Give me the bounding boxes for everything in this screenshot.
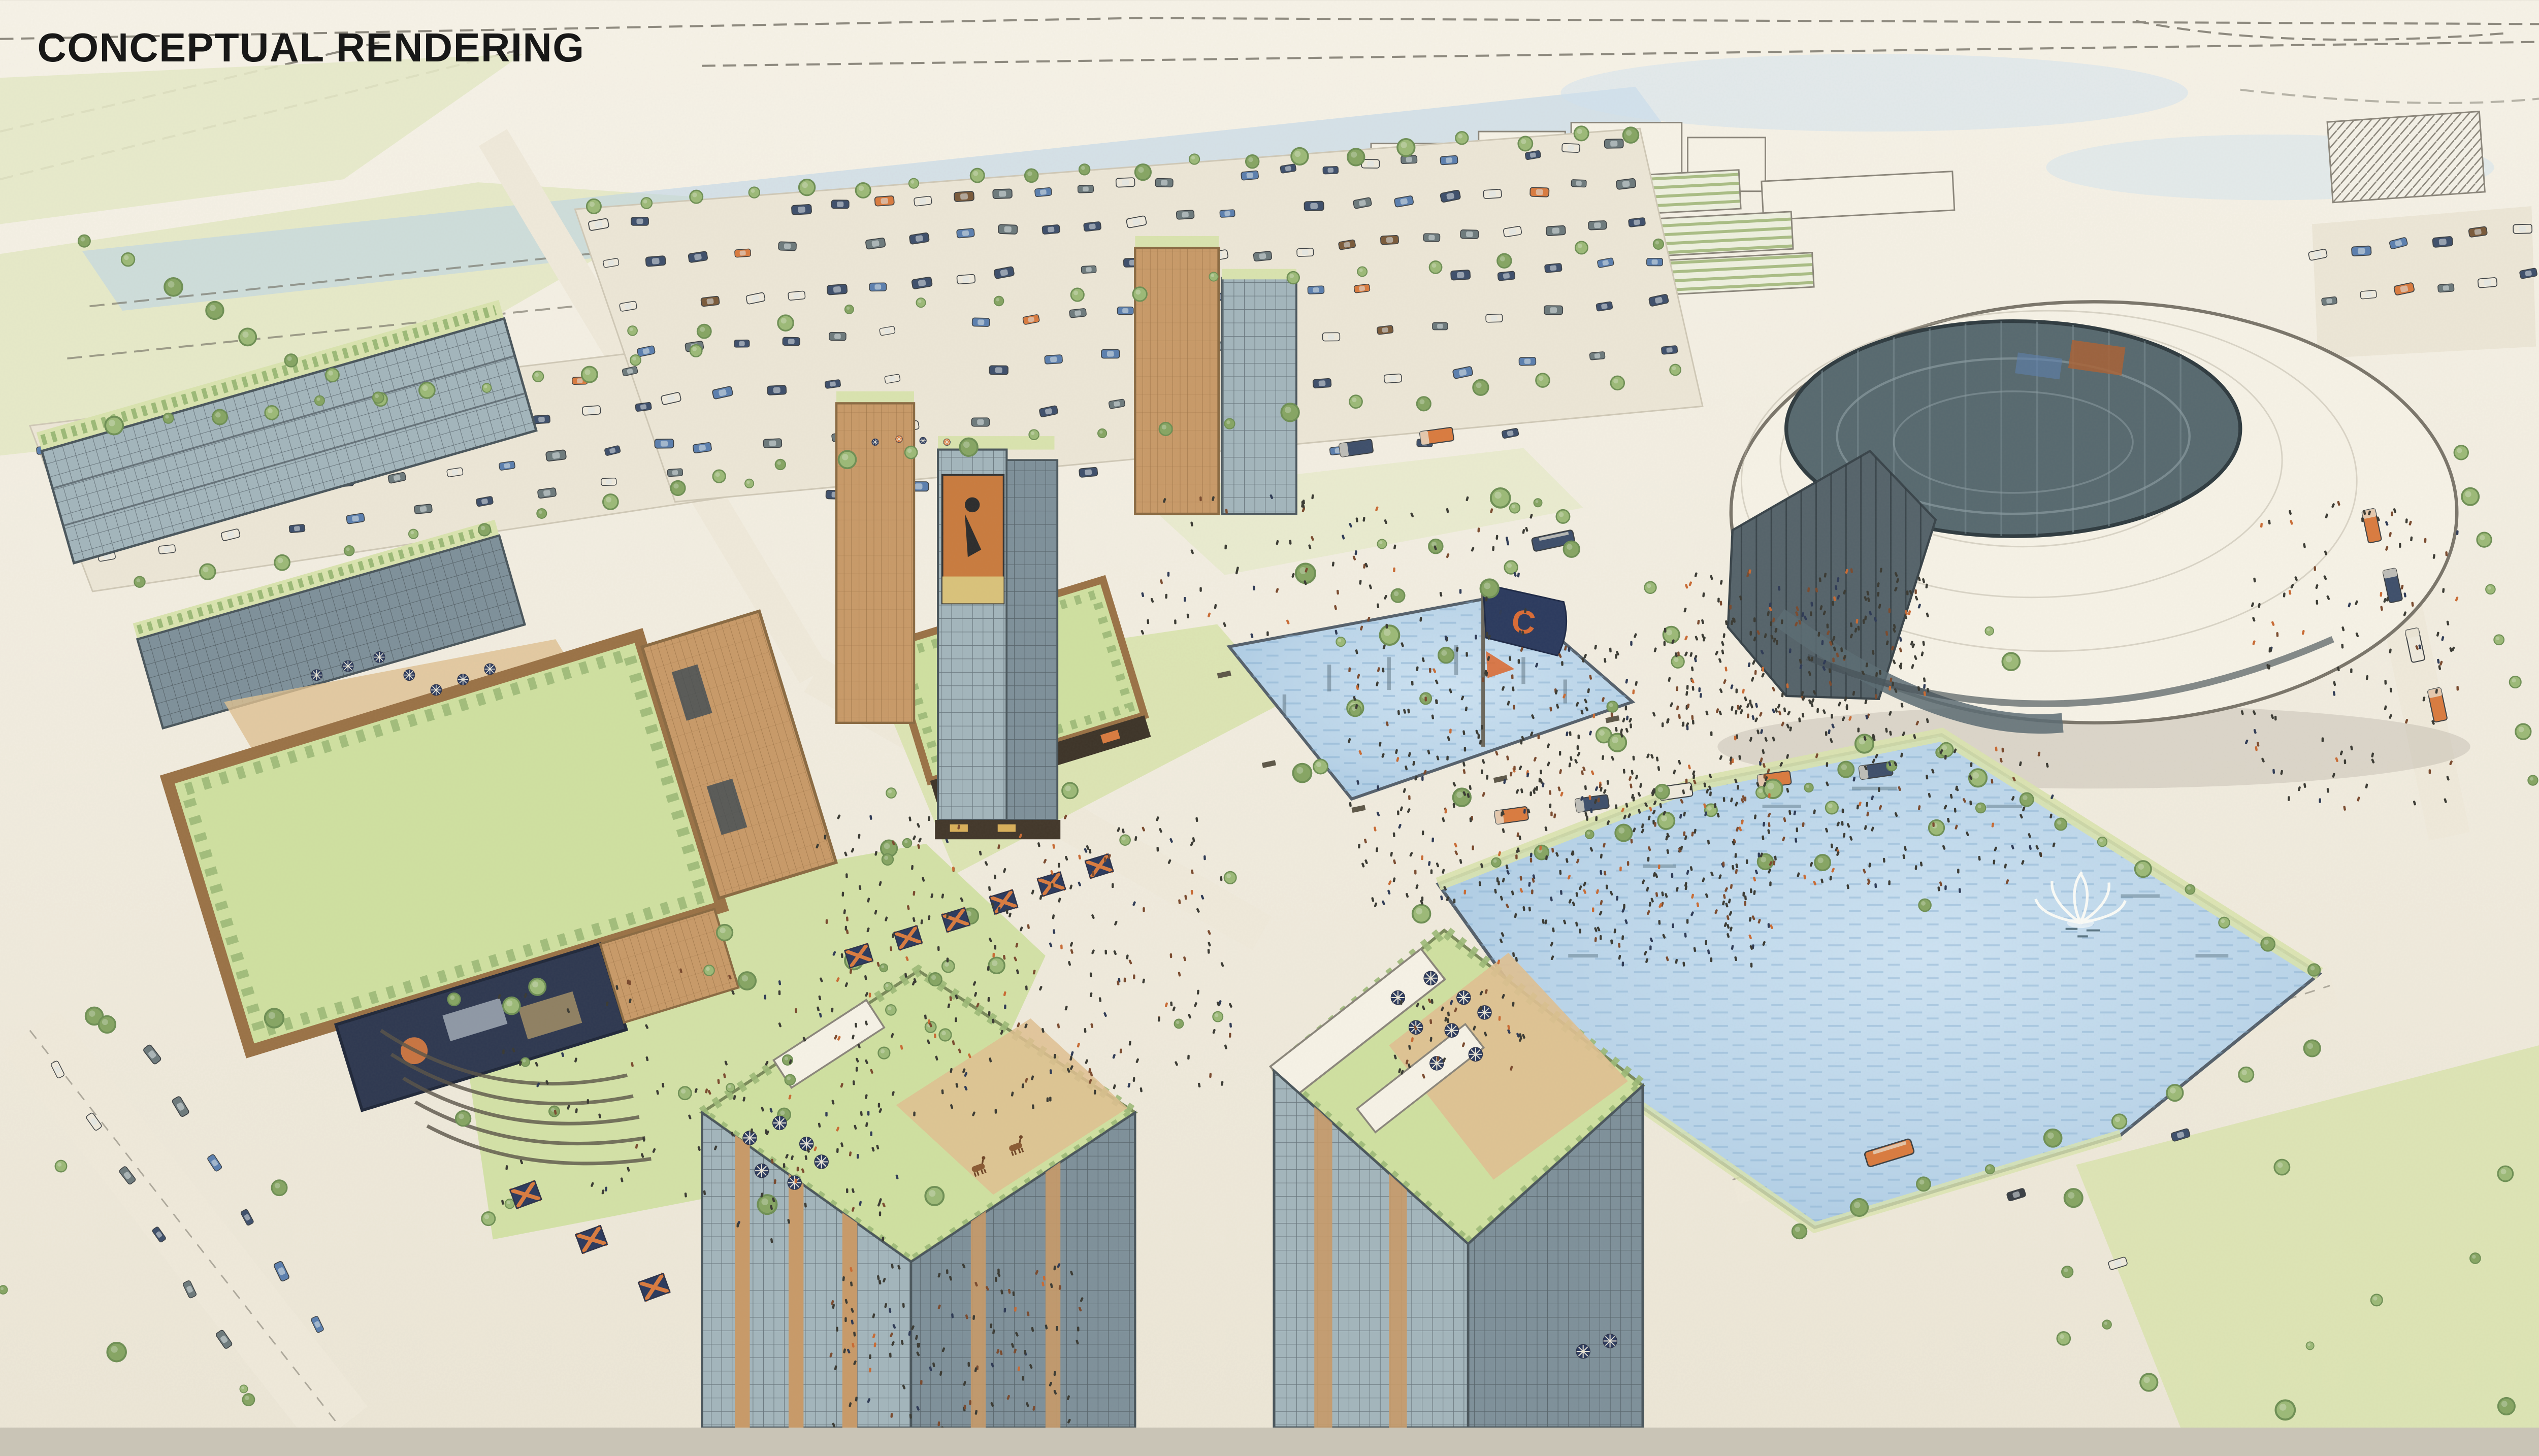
tree [886, 1005, 896, 1015]
pedestrian [857, 1154, 859, 1159]
pedestrian [2274, 716, 2277, 721]
tree [1815, 855, 1831, 871]
pedestrian [1969, 801, 1972, 806]
parked-car [1176, 210, 1194, 219]
tree [206, 302, 223, 319]
pedestrian [1133, 974, 1135, 979]
pedestrian [1479, 881, 1481, 886]
tree [884, 982, 892, 990]
tree [344, 546, 354, 556]
umbrella-icon [1576, 1345, 1590, 1359]
pedestrian [1734, 736, 1737, 741]
pedestrian [1408, 795, 1411, 800]
pedestrian [1677, 651, 1680, 656]
parked-car [582, 406, 600, 415]
pedestrian [765, 1129, 767, 1134]
parked-car [792, 205, 812, 215]
tree [2486, 585, 2495, 594]
tree [164, 413, 174, 423]
pedestrian [992, 1018, 995, 1023]
parked-car [1323, 167, 1338, 174]
pedestrian [1561, 661, 1564, 666]
tree [1510, 503, 1520, 513]
tree [1281, 404, 1299, 421]
parked-car [414, 504, 433, 514]
pedestrian [1512, 1002, 1514, 1007]
parked-car [1498, 271, 1515, 281]
umbrella-icon [1430, 1056, 1444, 1070]
tree [697, 324, 711, 338]
parked-car [1460, 230, 1479, 239]
parked-car [832, 200, 849, 208]
tree [2498, 1166, 2513, 1181]
tree [482, 383, 492, 392]
parked-car [1451, 270, 1471, 280]
tree [1224, 419, 1234, 429]
parked-car [1588, 221, 1607, 230]
pedestrian [1477, 527, 1480, 533]
rendering-canvas: domed stadium with open oculus [0, 0, 2539, 1428]
pedestrian [1377, 785, 1379, 790]
pedestrian [1466, 652, 1468, 657]
parked-car [158, 545, 176, 554]
tree [1838, 762, 1854, 777]
pedestrian [1750, 888, 1752, 894]
parked-car [1042, 225, 1060, 235]
tree [1976, 803, 1986, 813]
pedestrian [1888, 880, 1891, 885]
pedestrian [1549, 804, 1552, 809]
pedestrian [1393, 568, 1395, 573]
umbrella-icon [773, 1116, 787, 1130]
pedestrian [1447, 1018, 1449, 1023]
pedestrian [1735, 853, 1737, 858]
tree [2065, 1189, 2082, 1207]
tree [905, 446, 917, 458]
pedestrian [1209, 1073, 1212, 1078]
parked-car [1069, 308, 1087, 318]
tree [1071, 288, 1084, 301]
parked-car [1322, 333, 1340, 341]
pedestrian [1496, 877, 1499, 882]
pedestrian [1892, 682, 1894, 687]
pedestrian [845, 873, 848, 878]
tree [886, 788, 896, 798]
pedestrian [2319, 798, 2321, 803]
parked-car [631, 217, 648, 225]
pedestrian [1481, 725, 1483, 730]
tree [1296, 564, 1315, 583]
tree [1098, 429, 1106, 438]
pedestrian [795, 1178, 797, 1183]
tree [1985, 1165, 1995, 1174]
pedestrian [1796, 828, 1798, 833]
tree [1189, 154, 1199, 164]
pedestrian [1480, 1006, 1482, 1011]
tree [1498, 254, 1512, 268]
parked-car [972, 318, 990, 326]
tree [878, 1047, 890, 1059]
pedestrian [826, 919, 828, 924]
pedestrian [1077, 1327, 1080, 1332]
pedestrian [1058, 863, 1060, 868]
tree [671, 481, 685, 495]
pedestrian [1453, 803, 1455, 808]
pedestrian [1857, 727, 1860, 732]
pedestrian [1781, 619, 1783, 624]
parked-car [957, 274, 975, 284]
pedestrian [1932, 822, 1935, 827]
pedestrian [1874, 883, 1877, 888]
parked-car [1647, 258, 1663, 266]
tree [799, 180, 815, 195]
pedestrian [1187, 1055, 1190, 1060]
tree [989, 957, 1004, 973]
pedestrian [1592, 713, 1595, 718]
tree [690, 190, 703, 203]
tree [628, 326, 637, 336]
pedestrian [1611, 939, 1613, 944]
tree [2112, 1114, 2126, 1129]
pedestrian [1513, 705, 1515, 710]
pedestrian [955, 1017, 957, 1022]
pedestrian [1682, 721, 1684, 726]
pedestrian [1559, 751, 1561, 755]
tree [373, 392, 384, 403]
pedestrian [913, 1111, 916, 1116]
tree [134, 577, 145, 587]
pedestrian [1773, 861, 1775, 866]
tree [529, 979, 546, 996]
pedestrian [1764, 774, 1766, 778]
parked-car [1589, 352, 1605, 360]
tree [1615, 824, 1632, 841]
pedestrian [1515, 854, 1518, 859]
pedestrian [1757, 852, 1760, 857]
pedestrian [1499, 1016, 1501, 1021]
pedestrian [1184, 597, 1186, 602]
parked-car [1433, 323, 1448, 330]
pedestrian [1749, 700, 1751, 705]
tree [243, 1394, 254, 1405]
parked-car [788, 291, 805, 301]
pedestrian [987, 966, 990, 971]
pedestrian [972, 1315, 975, 1320]
pedestrian [824, 835, 827, 840]
pedestrian [1199, 587, 1201, 591]
tree [1670, 365, 1680, 375]
pedestrian [1024, 1350, 1026, 1354]
tree [738, 972, 756, 989]
pedestrian [1568, 647, 1571, 652]
pedestrian [1481, 769, 1483, 774]
pedestrian [1710, 957, 1713, 962]
pedestrian [1658, 920, 1661, 925]
tree [265, 1009, 284, 1028]
pedestrian [1518, 659, 1520, 664]
pedestrian [1529, 791, 1532, 797]
pedestrian [2001, 748, 2004, 753]
pedestrian [1662, 722, 1664, 727]
pedestrian [1889, 608, 1891, 613]
pedestrian [2429, 769, 2431, 774]
tree [2219, 917, 2229, 928]
pedestrian [1798, 717, 1801, 722]
tree [2510, 676, 2521, 688]
pedestrian [1749, 631, 1752, 636]
pedestrian [1954, 808, 1957, 813]
pedestrian [1995, 746, 1998, 751]
tree [749, 187, 760, 197]
tree [1518, 137, 1533, 151]
pedestrian [1475, 635, 1477, 639]
tree [1377, 539, 1386, 548]
tree [1357, 267, 1367, 276]
umbrella-icon [1603, 1334, 1617, 1348]
pedestrian [1143, 907, 1145, 912]
tree [455, 1111, 470, 1126]
pedestrian [1459, 589, 1461, 593]
pedestrian [1592, 907, 1594, 912]
pedestrian [1199, 497, 1202, 502]
tree [690, 345, 702, 357]
pedestrian [1147, 619, 1149, 624]
parked-car [1035, 187, 1052, 196]
pedestrian [994, 875, 996, 880]
parked-car [667, 469, 682, 477]
pedestrian [605, 1186, 607, 1192]
pedestrian [1220, 876, 1222, 881]
pedestrian [2384, 680, 2387, 685]
pedestrian [1826, 762, 1829, 767]
parked-car [1401, 155, 1417, 163]
tree [1348, 149, 1364, 166]
parked-car [1605, 139, 1623, 148]
pedestrian [2399, 543, 2401, 548]
parked-car [914, 196, 932, 206]
pedestrian [1165, 594, 1167, 599]
pedestrian [1658, 865, 1661, 870]
tree [1556, 510, 1570, 523]
pedestrian [1698, 687, 1701, 692]
pedestrian [1112, 883, 1114, 888]
tree [1916, 1177, 1930, 1191]
tree [2140, 1374, 2158, 1391]
pedestrian [1022, 1376, 1024, 1381]
tree [778, 315, 793, 330]
pedestrian [1664, 628, 1667, 633]
parked-car [874, 196, 894, 206]
pedestrian [1872, 734, 1874, 739]
tree [2055, 818, 2067, 830]
tree [1159, 422, 1172, 435]
tree [78, 235, 90, 247]
pedestrian [1611, 712, 1613, 717]
pedestrian [1959, 888, 1961, 893]
pedestrian [1722, 862, 1724, 867]
tree [1213, 1012, 1223, 1022]
tree [2470, 1253, 2481, 1264]
umbrella-icon [815, 1155, 828, 1169]
pedestrian [1348, 667, 1351, 672]
tree [165, 278, 182, 296]
tree [1350, 705, 1361, 716]
parked-car [2438, 284, 2454, 292]
tree [505, 1199, 514, 1208]
pedestrian [1842, 809, 1844, 813]
tree [1336, 637, 1345, 646]
pedestrian [1586, 816, 1588, 821]
pedestrian [1832, 657, 1835, 663]
tree [775, 459, 786, 470]
tree [2498, 1398, 2515, 1415]
parked-car [767, 385, 787, 395]
parked-car [1354, 284, 1370, 293]
pedestrian [911, 865, 914, 870]
pedestrian [1358, 844, 1360, 849]
tree [1645, 582, 1656, 593]
umbrella-icon [800, 1137, 813, 1151]
pedestrian [1944, 885, 1947, 890]
parked-car [655, 439, 673, 448]
pedestrian [1831, 714, 1833, 718]
pedestrian [1776, 640, 1778, 645]
umbrella-icon [743, 1131, 757, 1145]
pedestrian [1600, 935, 1602, 940]
pedestrian [2268, 648, 2271, 653]
tree [521, 1057, 530, 1066]
pedestrian [1993, 859, 1995, 865]
tree [1417, 397, 1430, 411]
pedestrian [1647, 857, 1650, 862]
pedestrian [1446, 756, 1449, 761]
pedestrian [2322, 737, 2324, 742]
pedestrian [1883, 858, 1885, 863]
pedestrian [1539, 846, 1542, 851]
pedestrian [1768, 793, 1771, 798]
pedestrian [1470, 817, 1472, 822]
tree [315, 396, 324, 406]
tree [533, 371, 543, 382]
pedestrian [783, 1163, 786, 1168]
tree [2102, 1320, 2111, 1329]
tree [2306, 1342, 2314, 1349]
tree [1658, 812, 1675, 829]
pedestrian [1816, 708, 1819, 713]
flag-letter: C [1510, 602, 1537, 641]
pedestrian [1753, 617, 1756, 622]
pedestrian [1914, 589, 1917, 594]
tree [1491, 858, 1501, 868]
pedestrian [1513, 766, 1515, 771]
pedestrian [988, 1011, 991, 1016]
umbrella-icon [1445, 1023, 1458, 1037]
pedestrian [1618, 943, 1620, 948]
pedestrian [1683, 831, 1685, 836]
pedestrian [941, 1089, 944, 1095]
parked-car [1253, 251, 1272, 261]
pedestrian [1229, 1033, 1231, 1038]
pedestrian [1632, 689, 1635, 694]
tree [880, 964, 888, 972]
tree [1120, 835, 1130, 845]
pedestrian [2405, 518, 2408, 523]
tree [2135, 861, 2151, 877]
parked-car [1483, 189, 1502, 199]
pedestrian [1472, 845, 1474, 850]
tree [537, 509, 546, 518]
pedestrian [841, 891, 844, 897]
parked-car [957, 228, 974, 238]
pedestrian [1429, 668, 1431, 673]
tree [285, 354, 298, 367]
tree [275, 555, 290, 570]
pedestrian [867, 1111, 869, 1115]
pedestrian [1686, 725, 1689, 731]
tree [2528, 775, 2537, 785]
pedestrian [1654, 822, 1656, 827]
pedestrian [1449, 729, 1452, 734]
parked-car [825, 380, 840, 389]
pedestrian [2341, 644, 2343, 649]
pedestrian [1104, 950, 1107, 955]
tree [1349, 395, 1362, 408]
pedestrian [587, 1099, 589, 1104]
pedestrian [1621, 962, 1624, 967]
pedestrian [1224, 545, 1227, 550]
parked-car [1629, 218, 1646, 227]
pedestrian [1422, 831, 1424, 835]
tree [1209, 272, 1218, 281]
pedestrian [1397, 810, 1399, 815]
tree [641, 197, 652, 208]
pedestrian [1649, 945, 1652, 950]
parked-car [2322, 296, 2337, 305]
pedestrian [1732, 758, 1734, 763]
parked-car [1571, 180, 1586, 187]
tree [2494, 635, 2504, 645]
pedestrian [1875, 694, 1877, 699]
parked-car [645, 256, 666, 267]
pedestrian [1463, 889, 1466, 895]
parked-car [1155, 178, 1173, 187]
pedestrian [1431, 838, 1434, 843]
parked-car [1616, 178, 1636, 189]
pedestrian [2344, 759, 2347, 765]
pedestrian [1632, 755, 1635, 760]
tree [1611, 376, 1624, 390]
tree [704, 965, 714, 976]
parked-car [1297, 248, 1314, 257]
umbrella-icon [374, 652, 385, 663]
parked-car [1519, 357, 1536, 366]
tree [2371, 1295, 2383, 1306]
pedestrian [825, 1112, 827, 1116]
tree [587, 199, 601, 213]
pedestrian [1692, 720, 1695, 725]
tree [2002, 653, 2020, 670]
parked-car [1544, 306, 1563, 315]
tree [2098, 837, 2107, 846]
pedestrian [869, 992, 871, 997]
pedestrian [846, 916, 849, 921]
pedestrian [1846, 704, 1848, 709]
tree [1413, 905, 1430, 923]
tree [1380, 625, 1399, 645]
parked-car [2478, 278, 2497, 288]
pedestrian [1486, 632, 1488, 637]
pedestrian [764, 995, 766, 1000]
